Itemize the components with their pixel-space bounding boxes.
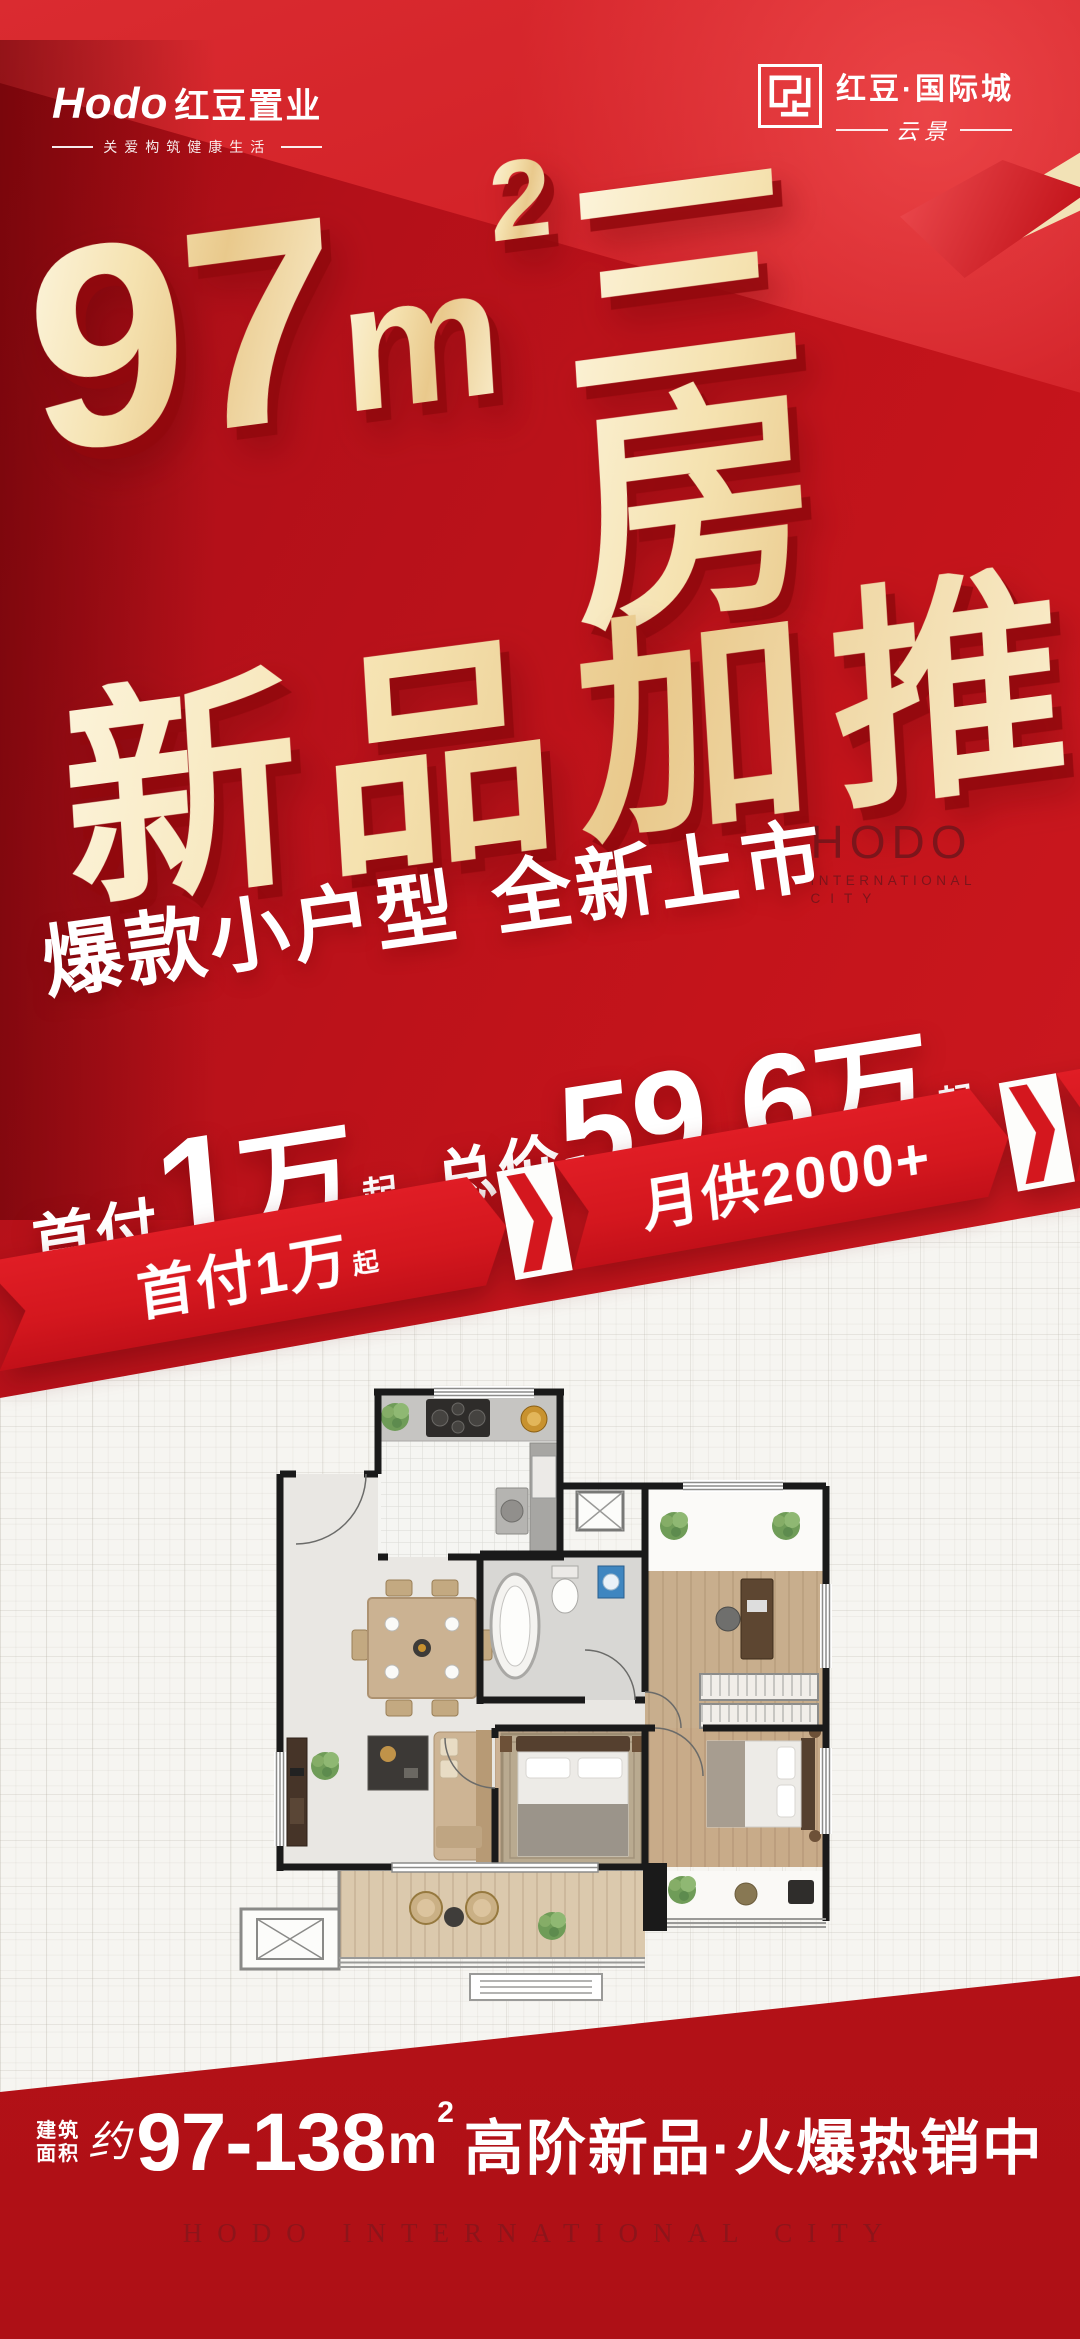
approx-label: 约 (88, 2108, 130, 2169)
area-label-line1: 建筑 (36, 2120, 80, 2143)
tv-console (287, 1738, 307, 1846)
desk-chair (716, 1607, 740, 1631)
desk (741, 1579, 773, 1659)
toilet (552, 1579, 578, 1613)
dining-area (352, 1580, 492, 1716)
bed-headboard (516, 1736, 630, 1752)
bottom-text-row: 建筑 面积 约 97-138 m 2 高阶新品·火爆热销中 (0, 2096, 1080, 2190)
area-unit: m (387, 2111, 437, 2176)
hodo-logo-latin: Hodo (52, 79, 168, 129)
toilet-tank (552, 1566, 578, 1578)
hero-area-sup: 2 (486, 144, 554, 255)
ribbon-chevron-icon (999, 1073, 1075, 1191)
hero-headline: 97 m 2 三房 新品加推 (0, 87, 1080, 932)
tagline-line-right (281, 146, 322, 148)
hodo-logo: Hodo 红豆置业 关爱构筑健康生活 (52, 78, 322, 157)
ribbon-chevron-icon (496, 1162, 572, 1280)
area-unit-sup: 2 (437, 2096, 454, 2130)
elevator-shaft (241, 1909, 339, 1969)
bottom-tagline: 高阶新品·火爆热销中 (464, 2100, 1044, 2187)
area-range: 97-138 (136, 2096, 385, 2190)
hodo-tagline: 关爱构筑健康生活 (103, 137, 271, 157)
tagline-line-left (52, 146, 93, 148)
hero-area-number: 97 (21, 183, 341, 486)
ribbon-suffix: 起 (351, 1240, 382, 1282)
duct-shaft (577, 1492, 623, 1530)
second-bedroom (707, 1726, 821, 1842)
tv-rug (368, 1736, 428, 1790)
side-table (444, 1907, 464, 1927)
master-bedroom (500, 1734, 644, 1866)
bed-headboard (801, 1738, 815, 1830)
hodo-logo-cn: 红豆置业 (174, 78, 322, 129)
balcony-pillar (643, 1863, 667, 1931)
hero-area-unit: m (335, 246, 506, 435)
ac-unit (470, 1974, 602, 2000)
floor-plan-image (230, 1386, 840, 2002)
footer-brand: HODO INTERNATIONAL CITY (0, 2218, 1080, 2249)
area-label-line2: 面积 (36, 2143, 80, 2166)
poster: Hodo 红豆置业 关爱构筑健康生活 红豆·国际城 云景 97 m (0, 0, 1080, 2339)
